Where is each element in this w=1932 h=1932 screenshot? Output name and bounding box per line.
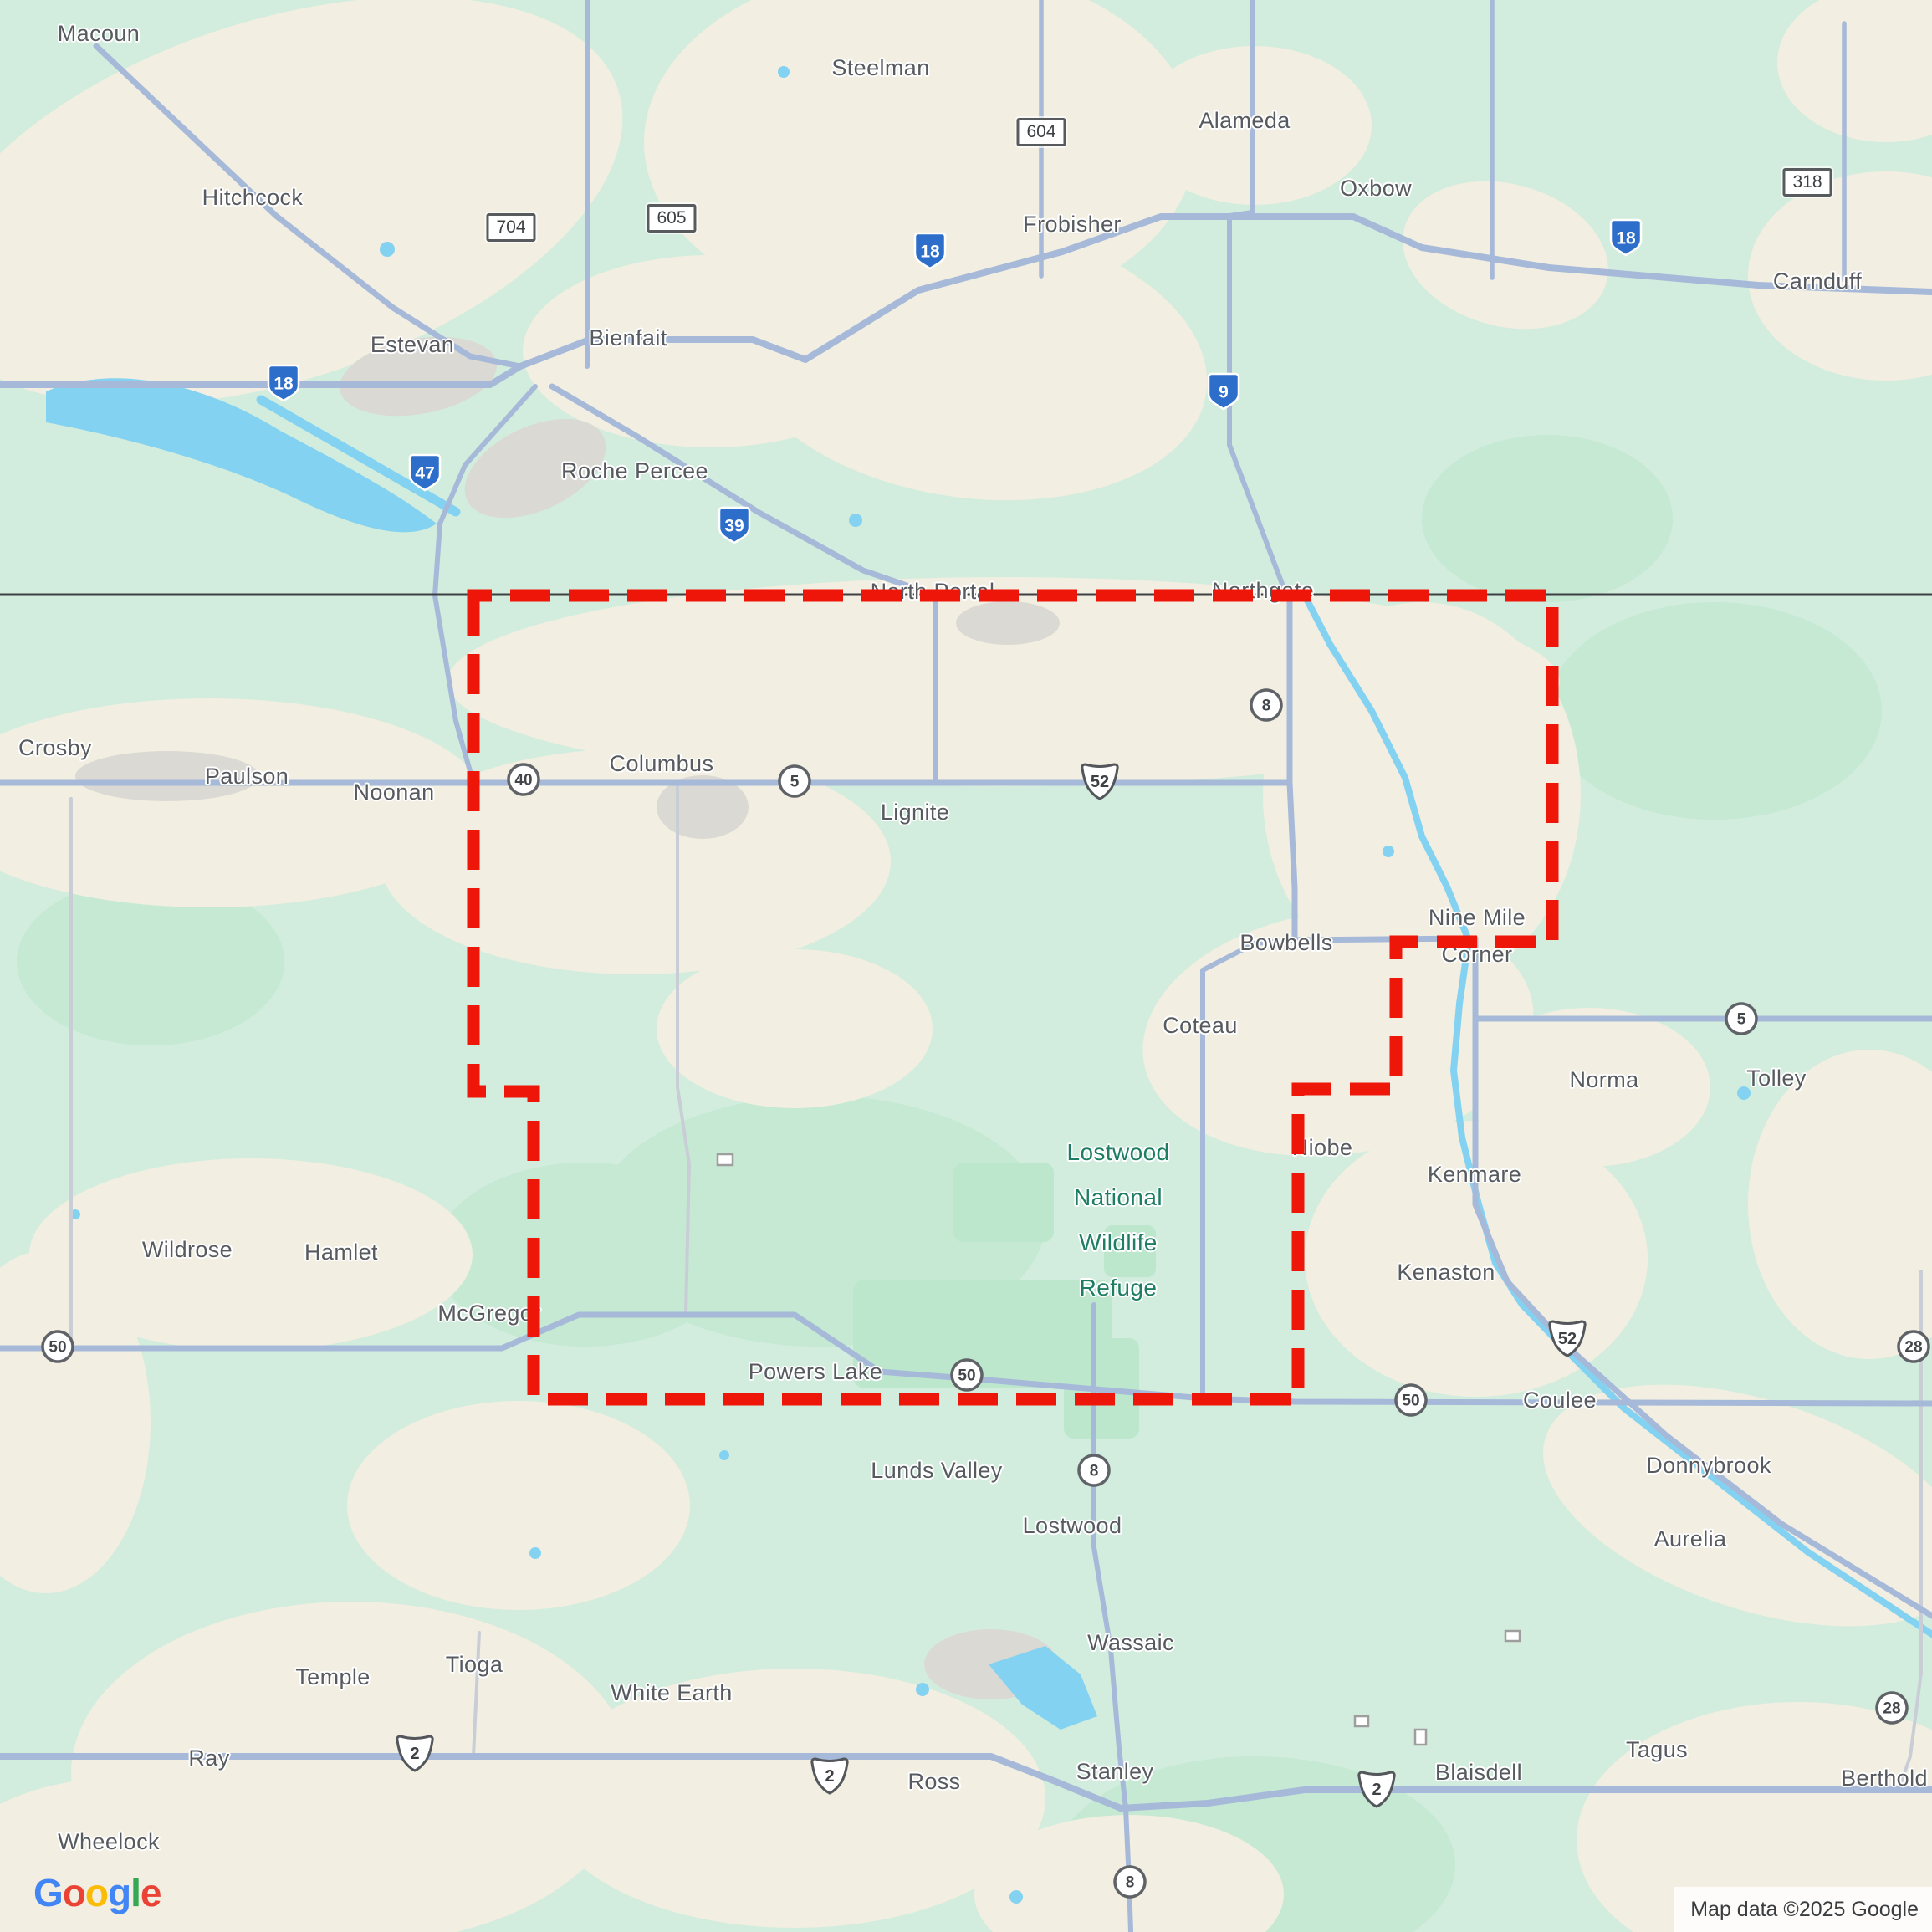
red-dashed-boundary bbox=[473, 595, 1552, 1399]
boundary-overlay bbox=[0, 0, 1932, 1932]
google-logo-letter: o bbox=[85, 1870, 108, 1915]
google-logo-letter: g bbox=[108, 1870, 130, 1915]
map-canvas[interactable]: MacounHitchcockSteelmanAlamedaFrobisherO… bbox=[0, 0, 1932, 1932]
map-attribution: Map data ©2025 Google bbox=[1674, 1887, 1932, 1932]
google-logo-letter: e bbox=[141, 1870, 161, 1915]
google-logo[interactable]: Google bbox=[33, 1870, 161, 1915]
google-logo-letter: G bbox=[33, 1870, 63, 1915]
google-logo-letter: o bbox=[63, 1870, 85, 1915]
google-logo-letter: l bbox=[130, 1870, 141, 1915]
